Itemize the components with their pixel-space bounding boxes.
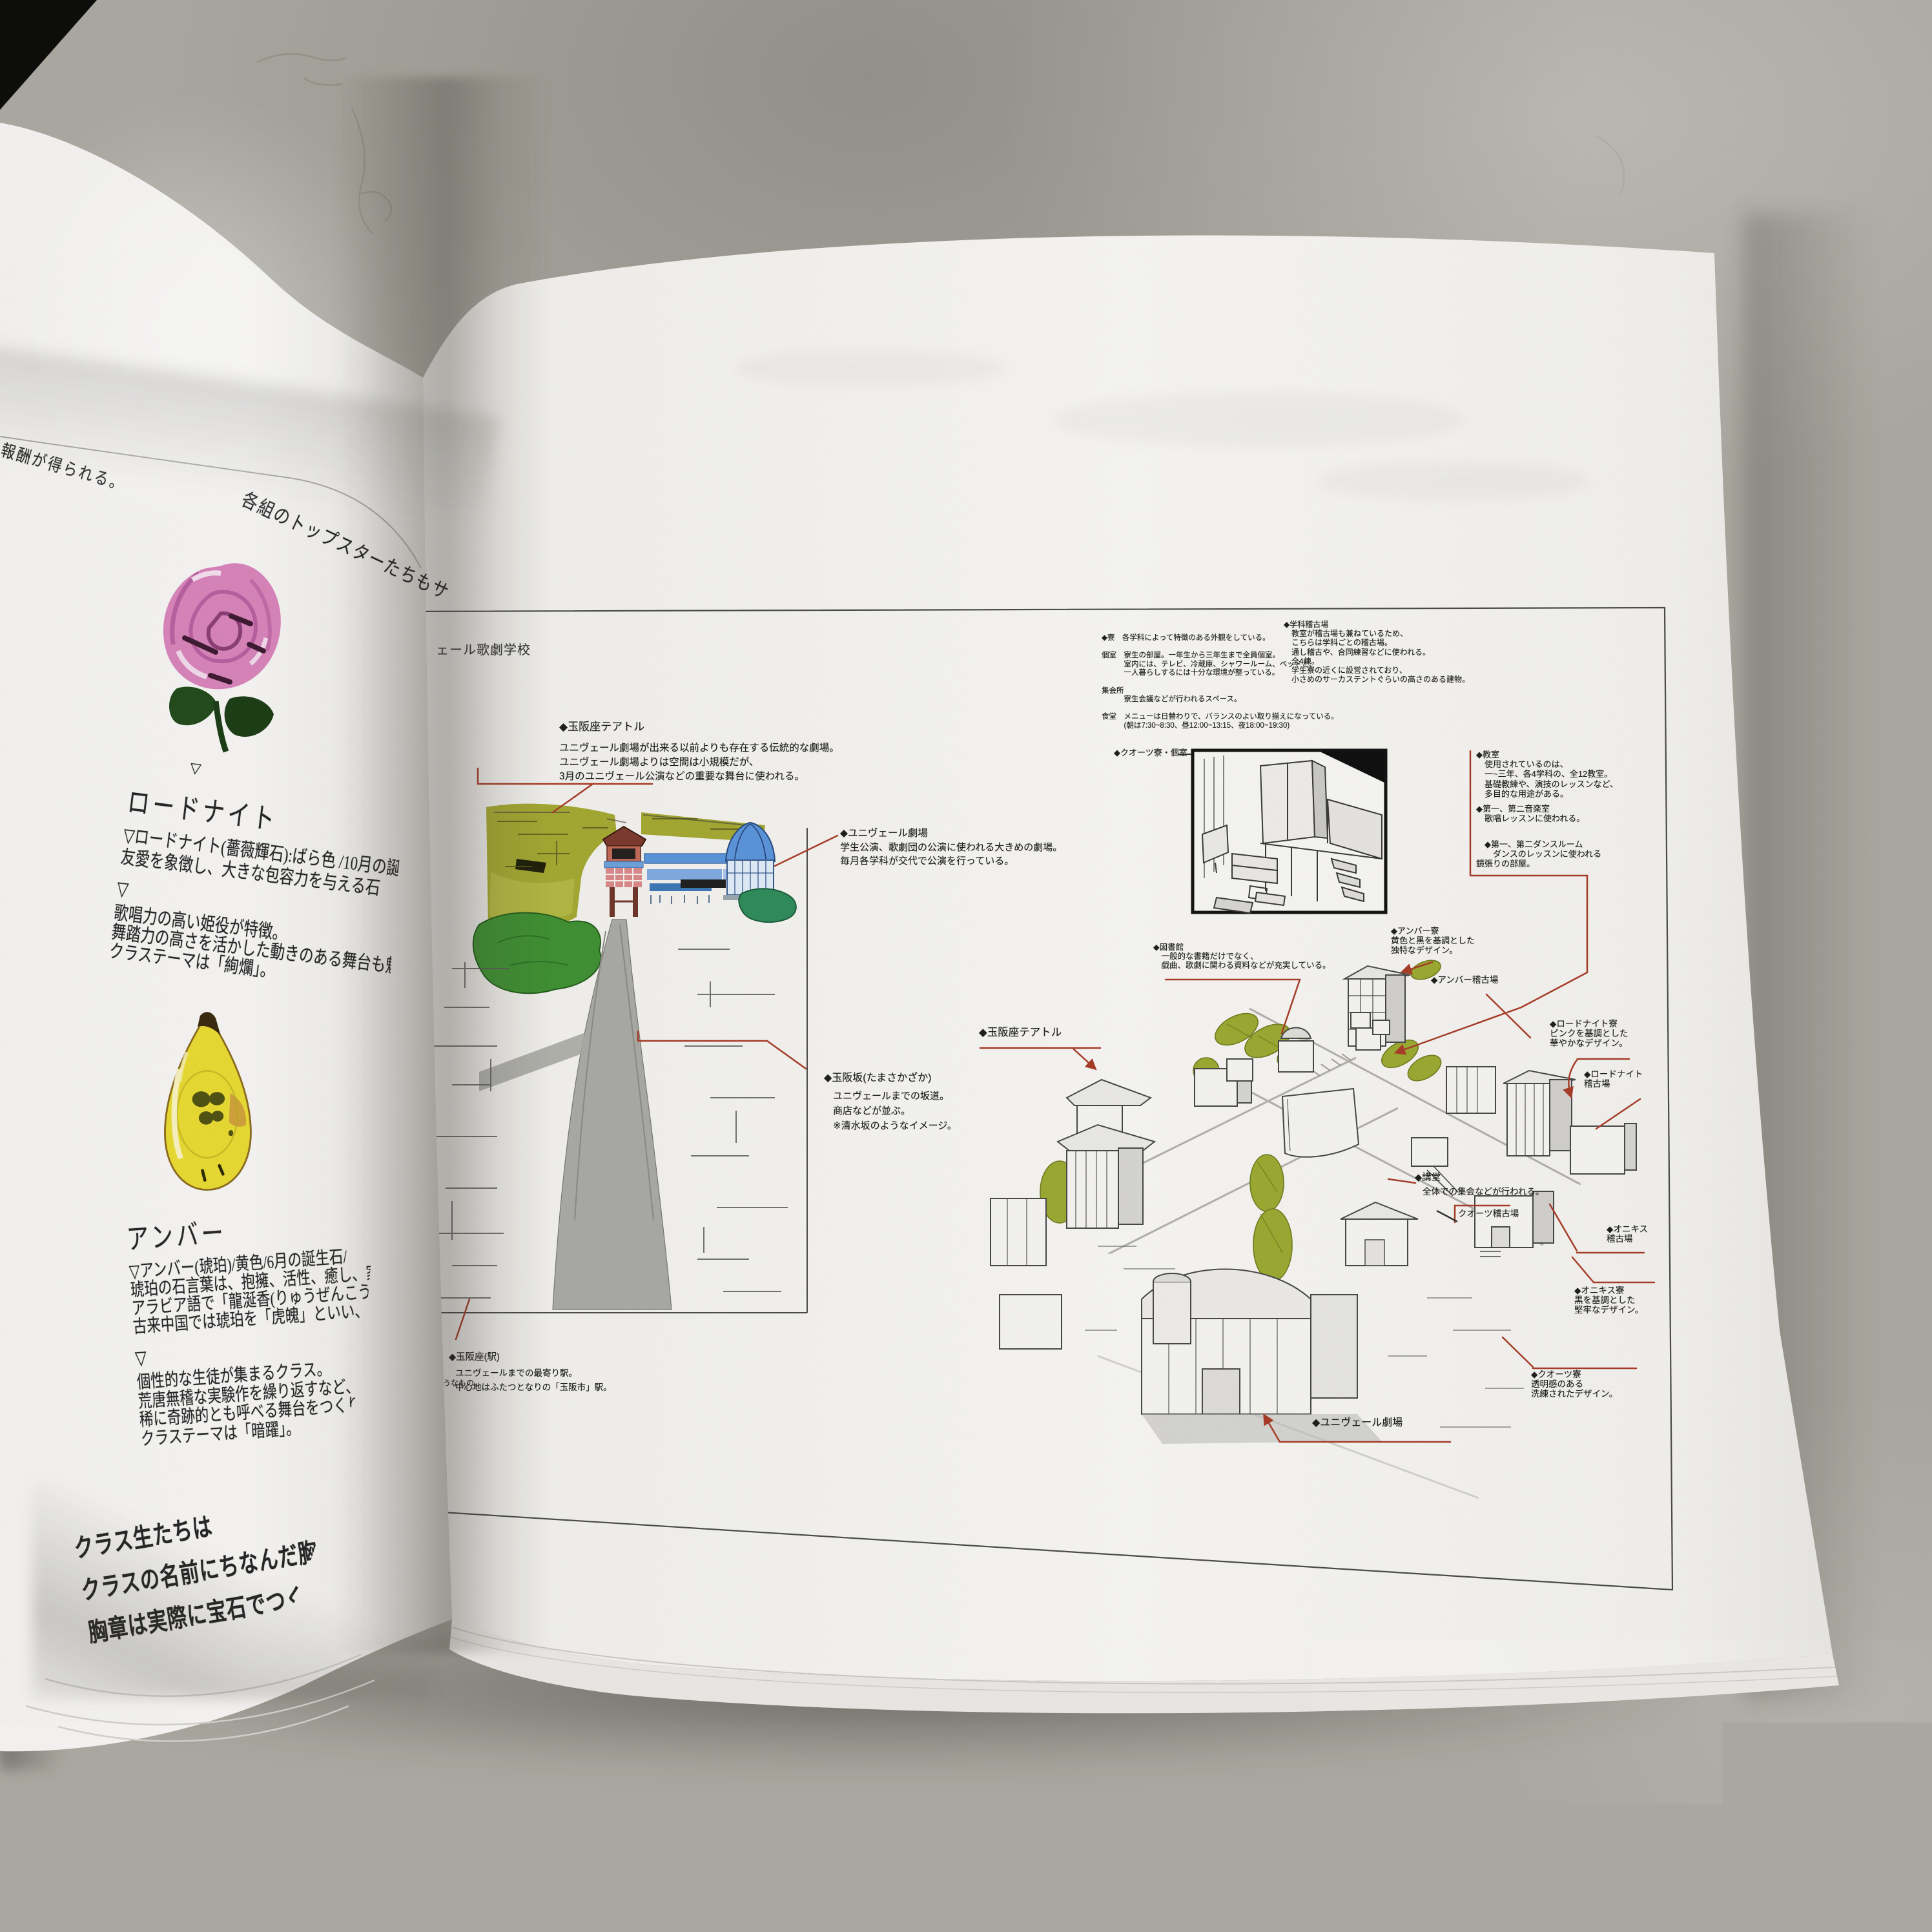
rhodonite-dorm-block-line: 華やかなデザイン。 [1550, 1038, 1629, 1048]
classroom-block: ◆教室 使用されているのは、 一~三年、各4学科の、全12教室。 基礎教練や、演… [1476, 750, 1618, 799]
dorm-info-block-line: (朝は7:30~8:30、昼12:00~13:15、夜18:00~19:30) [1102, 722, 1339, 731]
tamasakaza-station-desc-line: 中心地はふたつとなりの「玉阪市」駅。 [455, 1381, 612, 1395]
otomehiko-street-name: 乙女彦通 [373, 1317, 420, 1334]
amber-info-line: 琥珀の石言葉は、抱擁、活性、癒し、家族の繁栄、長 [130, 1253, 530, 1300]
book-left-shadow [0, 362, 65, 1769]
dorm-info-block-line: ◆寮 各学科によって特徴のある外観をしている。 [1102, 634, 1339, 643]
tamasakaza-station-desc: ユニヴェールまでの最寄り駅。中心地はふたつとなりの「玉阪市」駅。 [455, 1366, 612, 1395]
music-rooms-block-line: 歌唱レッスンに使われる。 [1476, 814, 1585, 823]
map-buildings [991, 966, 1636, 1444]
classroom-block-line: ◆教室 [1476, 750, 1618, 759]
tamasakaza-theatre-desc-line: ユニヴェール劇場が出来る以前よりも存在する伝統的な劇場。 [559, 741, 839, 755]
amber-keikoba-label: ◆アンバー稽古場 [1431, 975, 1498, 985]
univeil-theatre-desc-line: 毎月各学科が交代で公演を行っている。 [840, 854, 1062, 868]
amber-gem-illustration [159, 1009, 256, 1196]
map-trees [1040, 957, 1445, 1343]
reward-note: 報酬が得られる。 [0, 437, 129, 496]
tamasakaza-theatre-desc-line: 3月のユニヴェール公演などの重要な舞台に使われる。 [559, 770, 839, 784]
quartz-dorm-block-line: 洗練されたデザイン。 [1531, 1389, 1618, 1399]
black-corner-wedge [0, 0, 97, 110]
otomehiko-street-reading: (めひこどおり) [373, 1332, 429, 1344]
map-tamasakaza-theatre-label: ◆玉阪座テアトル [979, 1027, 1062, 1039]
rhodonite-keikoba-block-line: 稽古場 [1584, 1079, 1643, 1089]
campus-map-sketch [991, 957, 1636, 1498]
amber-class-desc-line: 個性的な生徒が集まるクラス。 [136, 1345, 537, 1392]
gakka-keikoba-block-line: 教室が稽古場も兼ねているため、 [1284, 629, 1470, 638]
otomehiko-street-desc-line: するなら、 [373, 1369, 482, 1378]
gakka-keikoba-block: ◆学科稽古場 教室が稽古場も兼ねているため、 こちらは学科ごとの稽古場。 通し稽… [1284, 620, 1470, 684]
page-block-edge [449, 1619, 1839, 1713]
amber-info-line: ▽アンバー(琥珀)/黄色/6月の誕生石/ [128, 1235, 529, 1281]
book-right-shadow [1743, 213, 1924, 1698]
book-drop-shadow [13, 1588, 1886, 1821]
classroom-block-line: 一~三年、各4学科の、全12教室。 [1476, 769, 1618, 779]
onyx-dorm-block-line: 黒を基調とした [1574, 1295, 1643, 1305]
amber-dorm-block-line: 黄色と黒を基調とした [1391, 936, 1475, 945]
left-page-curl-shade [0, 346, 500, 584]
otomehiko-street-desc: 玉阪坂の脇道。玉阪坂を表通りとするなら、こちらは裏通りのようなもの。 [373, 1351, 482, 1388]
left-page-top-glow [0, 97, 400, 562]
page-curl-crease [0, 437, 421, 568]
rhodonite-info-line: ▽ロードナイト(薔薇輝石):ばら色 /10月の誕生石/「 [122, 825, 522, 895]
dorm-info-block: ◆寮 各学科によって特徴のある外観をしている。 個室 寮生の部屋。一年生から三年… [1102, 634, 1339, 731]
hill-illustration-frame [402, 828, 807, 1313]
library-block-line: 一般的な書籍だけでなく、 [1153, 952, 1331, 961]
print-through-ghost [736, 350, 1588, 500]
map-streets [1007, 1009, 1585, 1498]
dorm-info-block-line: 個室 寮生の部屋。一年生から三年生まで全員個室。 [1102, 652, 1339, 661]
tamasakazaka-title: ◆玉阪坂(たまさかざか) [824, 1072, 931, 1084]
rhodonite-keikoba-block-line: ◆ロードナイト [1584, 1069, 1643, 1079]
music-rooms-block-line: ◆第一、第二音楽室 [1476, 804, 1585, 814]
onyx-keikoba-block: ◆オニキス稽古場 [1607, 1224, 1648, 1244]
dance-rooms-block-line: ダンスのレッスンに使われる [1476, 849, 1601, 859]
onyx-keikoba-block-line: ◆オニキス [1607, 1224, 1648, 1234]
glass-dome-theatre [723, 823, 776, 900]
dorm-info-block-line [1102, 678, 1339, 687]
rhodonite-class-desc-line: 舞踏力の高さを活かした動きのある舞台も魅力。 [110, 922, 510, 990]
library-block: ◆図書館 一般的な書籍だけでなく、 戯曲、歌劇に関わる資料などが充実している。 [1153, 943, 1331, 971]
amber-class-desc-line: クラステーマは「暗躍」。 [140, 1402, 541, 1448]
left-page-bottom-shade [32, 1479, 433, 1698]
amber-info-line: 古来中国では琥珀を「虎魄」といい、「琥珀は虎の [132, 1290, 533, 1337]
dance-rooms-block: ◆第一、第二ダンスルーム ダンスのレッスンに使われる鏡張りの部屋。 [1476, 839, 1601, 869]
amber-info: ▽アンバー(琥珀)/黄色/6月の誕生石/琥珀の石言葉は、抱擁、活性、癒し、家族の… [128, 1235, 533, 1336]
dorm-info-block-line: 室内には、テレビ、冷蔵庫、シャワールーム、ベッドと、 [1102, 661, 1339, 670]
onyx-keikoba-block-line: 稽古場 [1607, 1234, 1648, 1244]
amber-class-desc-line: 稀に奇跡的とも呼べる舞台をつくりあげ、伝説を [139, 1383, 540, 1430]
sketch-buildings-strokes [413, 949, 788, 1298]
page-stack-edges [26, 1654, 375, 1741]
map-extra-sketch [1085, 1246, 1524, 1427]
onyx-dorm-block-line: ◆オニキス寮 [1574, 1286, 1643, 1295]
amber-class-desc-line: 荒唐無稽な実験作を繰り返すなど、賞レースに絡 [138, 1364, 539, 1410]
dorm-info-block-line: 一人暮らしするには十分な環境が整っている。 [1102, 669, 1339, 678]
pagoda-theatre [603, 827, 646, 917]
left-page-sheet [0, 0, 1932, 1932]
otomehiko-street-desc-line: 玉阪坂を表通りと [373, 1360, 482, 1369]
amber-class-desc: 個性的な生徒が集まるクラス。荒唐無稽な実験作を繰り返すなど、賞レースに絡稀に奇跡… [136, 1345, 541, 1448]
right-page-artwork [0, 0, 1932, 1932]
rhodonite-class-desc-line: 歌唱力の高い姫役が特徴。 [113, 903, 513, 971]
otomehiko-street-desc-line: 玉阪坂の脇道。 [373, 1351, 482, 1360]
gakka-keikoba-block-line: 小さめのサーカステントぐらいの高さのある建物。 [1284, 675, 1470, 684]
class-badge-footer-line: クラス生たちは [71, 1448, 562, 1572]
gakka-keikoba-block-line: ◆学科稽古場 [1284, 620, 1470, 629]
class-badge-footer-line: 胸章は実際に宝石でつくられてい [85, 1532, 576, 1656]
right-page-labels: ェール歌劇学校 ◆玉阪座テアトル ユニヴェール劇場が出来る以前よりも存在する伝統… [0, 0, 1932, 1932]
rhodonite-block: ロードナイト ▽ロードナイト(薔薇輝石):ばら色 /10月の誕生石/「友愛を象徴… [108, 779, 528, 1009]
rhodonite-heading: ロードナイト [125, 779, 528, 868]
quartz-dorm-room-label: ◆クオーツ寮・個室 [1114, 748, 1187, 757]
quartz-dorm-block-line: ◆クオーツ寮 [1531, 1370, 1618, 1379]
classroom-block-line: 使用されているのは、 [1476, 759, 1618, 769]
rhodonite-dorm-block-line: ◆ロードナイト寮 [1550, 1019, 1629, 1029]
rhodonite-mark: ▽ [116, 878, 515, 949]
dorm-info-block-line [1102, 704, 1339, 714]
gakka-keikoba-block-line: 学生寮の近くに設営されており、 [1284, 666, 1470, 675]
tamasakaza-station-desc-line: ユニヴェールまでの最寄り駅。 [455, 1366, 612, 1381]
amber-info-line: アラビア語で「龍涎香(りゅうぜんこう)」。 [131, 1271, 531, 1318]
rose-illustration [154, 554, 289, 754]
hill-illustration [413, 804, 796, 1310]
library-block-line: ◆図書館 [1153, 943, 1331, 952]
rhodonite-dorm-block: ◆ロードナイト寮ピンクを基調とした華やかなデザイン。 [1550, 1019, 1629, 1049]
concrete-scribbles [0, 0, 1932, 1932]
univeil-theatre-desc-line: 学生公演、歌劇団の公演に使われる大きめの劇場。 [840, 841, 1062, 854]
classroom-block-line: 多目的な用途がある。 [1476, 789, 1618, 799]
univeil-theatre-title: ◆ユニヴェール劇場 [840, 827, 928, 841]
tamasakazaka-desc-line: ユニヴェールまでの坂道。 [833, 1089, 957, 1104]
class-badge-footer: クラス生たちはクラスの名前にちなんだ胸章を胸章は実際に宝石でつくられてい [71, 1448, 576, 1656]
dorm-info-block-line: 寮生会議などが行われるスペース。 [1102, 695, 1339, 704]
rhodonite-info: ▽ロードナイト(薔薇輝石):ばら色 /10月の誕生石/「友愛を象徴し、大きな包容… [119, 825, 522, 917]
dance-rooms-block-line: ◆第一、第二ダンスルーム [1476, 839, 1601, 849]
amber-dorm-block-line: 独特なデザイン。 [1391, 945, 1475, 955]
rhodonite-info-line: 友愛を象徴し、大きな包容力を与える石 [119, 847, 519, 917]
gakka-keikoba-block-line: こちらは学科ごとの稽古場。 [1284, 638, 1470, 647]
rhodonite-keikoba-block: ◆ロードナイト稽古場 [1584, 1069, 1643, 1089]
right-page-sheet [0, 0, 1932, 1932]
quartz-keikoba-label: クオーツ稽古場 [1458, 1209, 1519, 1218]
music-rooms-block: ◆第一、第二音楽室 歌唱レッスンに使われる。 [1476, 804, 1585, 823]
content-frame [398, 608, 1672, 1590]
auditorium-desc: 全体での集会などが行われる。 [1423, 1187, 1544, 1197]
tamasakaza-theatre-desc-line: ユニヴェール劇場よりは空間は小規模だが、 [559, 755, 839, 770]
photo-of-open-artbook: ェール歌劇学校 ◆玉阪座テアトル ユニヴェール劇場が出来る以前よりも存在する伝統… [0, 0, 1932, 1932]
tamasakazaka-desc: ユニヴェールまでの坂道。商店などが並ぶ。※清水坂のようなイメージ。 [833, 1089, 957, 1133]
rhodonite-class-desc-line: クラステーマは「絢爛」。 [108, 941, 508, 1009]
gutter-shadow [336, 77, 549, 1653]
class-badge-footer-line: クラスの名前にちなんだ胸章を [78, 1490, 569, 1614]
rhodonite-class-desc: 歌唱力の高い姫役が特徴。舞踏力の高さを活かした動きのある舞台も魅力。クラステーマ… [108, 903, 512, 1009]
map-univeil-theatre-label: ◆ユニヴェール劇場 [1312, 1417, 1403, 1429]
auditorium-title: ◆講堂 [1415, 1173, 1441, 1184]
univeil-theatre-desc: 学生公演、歌劇団の公演に使われる大きめの劇場。毎月各学科が交代で公演を行っている… [840, 841, 1062, 868]
quartz-keikoba-tick [1437, 1211, 1457, 1222]
onyx-dorm-block-line: 堅牢なデザイン。 [1574, 1305, 1643, 1315]
dorm-info-block-line [1102, 643, 1339, 652]
tamasakaza-theatre-title: ◆玉阪座テアトル [559, 721, 644, 734]
page-header-partial: ェール歌劇学校 [436, 639, 531, 658]
tamasakaza-theatre-desc: ユニヴェール劇場が出来る以前よりも存在する伝統的な劇場。ユニヴェール劇場よりは空… [559, 741, 839, 784]
grain-overlay [0, 0, 1932, 1932]
onyx-dorm-block: ◆オニキス寮黒を基調とした堅牢なデザイン。 [1574, 1286, 1643, 1315]
rhodonite-dorm-block-line: ピンクを基調とした [1550, 1029, 1629, 1038]
dorm-info-block-line: 集会所 [1102, 687, 1339, 696]
red-leader-lines [411, 751, 1654, 1442]
quartz-dorm-block-line: 透明感のある [1531, 1379, 1618, 1389]
topstar-arc-note: 各組のトップスターたちもサブキャ [238, 484, 502, 628]
rhodonite-premark: ▽ [189, 759, 202, 777]
amber-dorm-block-line: ◆アンバー寮 [1391, 926, 1475, 936]
dorm-room-sketch [1178, 750, 1386, 913]
amber-block: アンバー ▽アンバー(琥珀)/黄色/6月の誕生石/琥珀の石言葉は、抱擁、活性、癒… [125, 1189, 541, 1448]
library-block-line: 戯曲、歌劇に関わる資料などが充実している。 [1153, 961, 1331, 970]
gakka-keikoba-block-line: 通し稽古や、合同練習などに使われる。 [1284, 648, 1470, 657]
classroom-block-line: 基礎教練や、演技のレッスンなど、 [1476, 779, 1618, 789]
quartz-dorm-block: ◆クオーツ寮透明感のある洗練されたデザイン。 [1531, 1370, 1618, 1399]
dance-rooms-block-line: 鏡張りの部屋。 [1476, 859, 1601, 868]
tamasakazaka-desc-line: ※清水坂のようなイメージ。 [833, 1118, 957, 1133]
dorm-info-block-line: 食堂 メニューは日替わりで、バランスのよい取り揃えになっている。 [1102, 713, 1339, 722]
tamasakaza-station-title: ◆玉阪座(駅) [449, 1352, 500, 1363]
amber-mark: ▽ [134, 1320, 535, 1370]
amber-heading: アンバー [125, 1189, 528, 1258]
tamasakazaka-desc-line: 商店などが並ぶ。 [833, 1104, 957, 1118]
gakka-keikoba-block-line: 全4棟。 [1284, 657, 1470, 666]
left-page-content: 報酬が得られる。 各組のトップスターたちもサブキャ ▽ ロードナイト ▽ロードナ… [0, 0, 1932, 1932]
amber-dorm-block: ◆アンバー寮黄色と黒を基調とした独特なデザイン。 [1391, 926, 1475, 956]
otomehiko-street-desc-line: こちらは裏通りのようなもの。 [373, 1379, 482, 1388]
